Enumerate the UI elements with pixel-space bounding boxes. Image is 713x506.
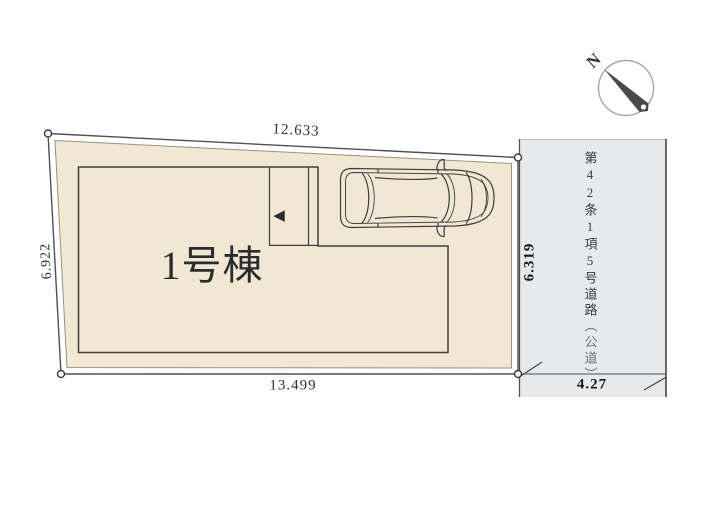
dimension-top: 12.633 xyxy=(272,121,320,140)
road-label: 第42条1項5号道路（公道） xyxy=(584,151,597,383)
dimension-left: 6.922 xyxy=(38,242,56,279)
building-label: 1号棟 xyxy=(161,233,264,291)
lot-area xyxy=(55,141,512,369)
corner-marker-bottom-left xyxy=(58,371,65,378)
road-label-main: 第42条1項5号道路 xyxy=(583,151,598,319)
compass-icon xyxy=(599,61,654,116)
site-plan-drawing xyxy=(0,0,713,506)
site-plan-canvas: 12.633 13.499 6.922 6.319 4.27 1号棟 ◀ 第42… xyxy=(0,0,713,506)
road-label-paren: （公道） xyxy=(583,319,598,383)
corner-marker-top-right xyxy=(515,154,522,161)
entrance-arrow-icon: ◀ xyxy=(273,206,285,224)
dimension-bottom: 13.499 xyxy=(269,378,316,395)
compass-needle-dot xyxy=(641,104,646,109)
corner-marker-bottom-right xyxy=(515,371,522,378)
dimension-right: 6.319 xyxy=(522,243,539,282)
corner-marker-top-left xyxy=(45,130,52,137)
